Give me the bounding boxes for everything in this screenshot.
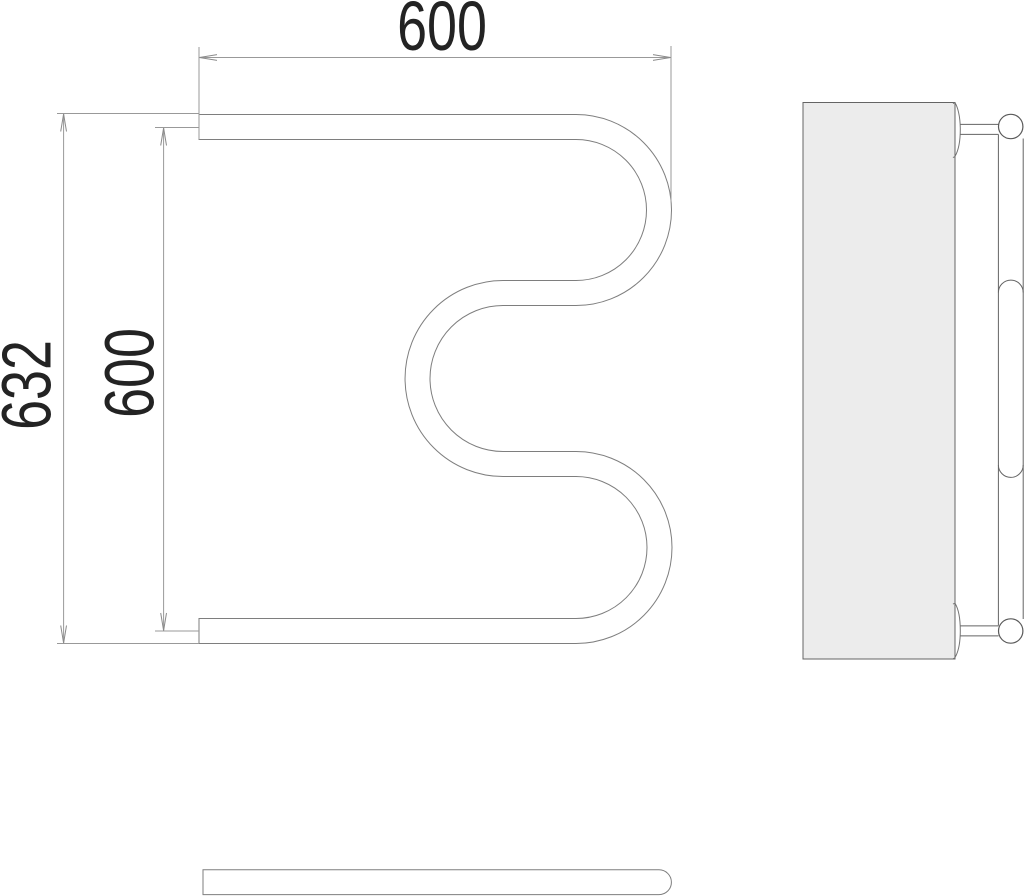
svg-text:600: 600 — [397, 0, 487, 65]
svg-text:632: 632 — [0, 340, 66, 430]
svg-text:600: 600 — [92, 328, 169, 418]
